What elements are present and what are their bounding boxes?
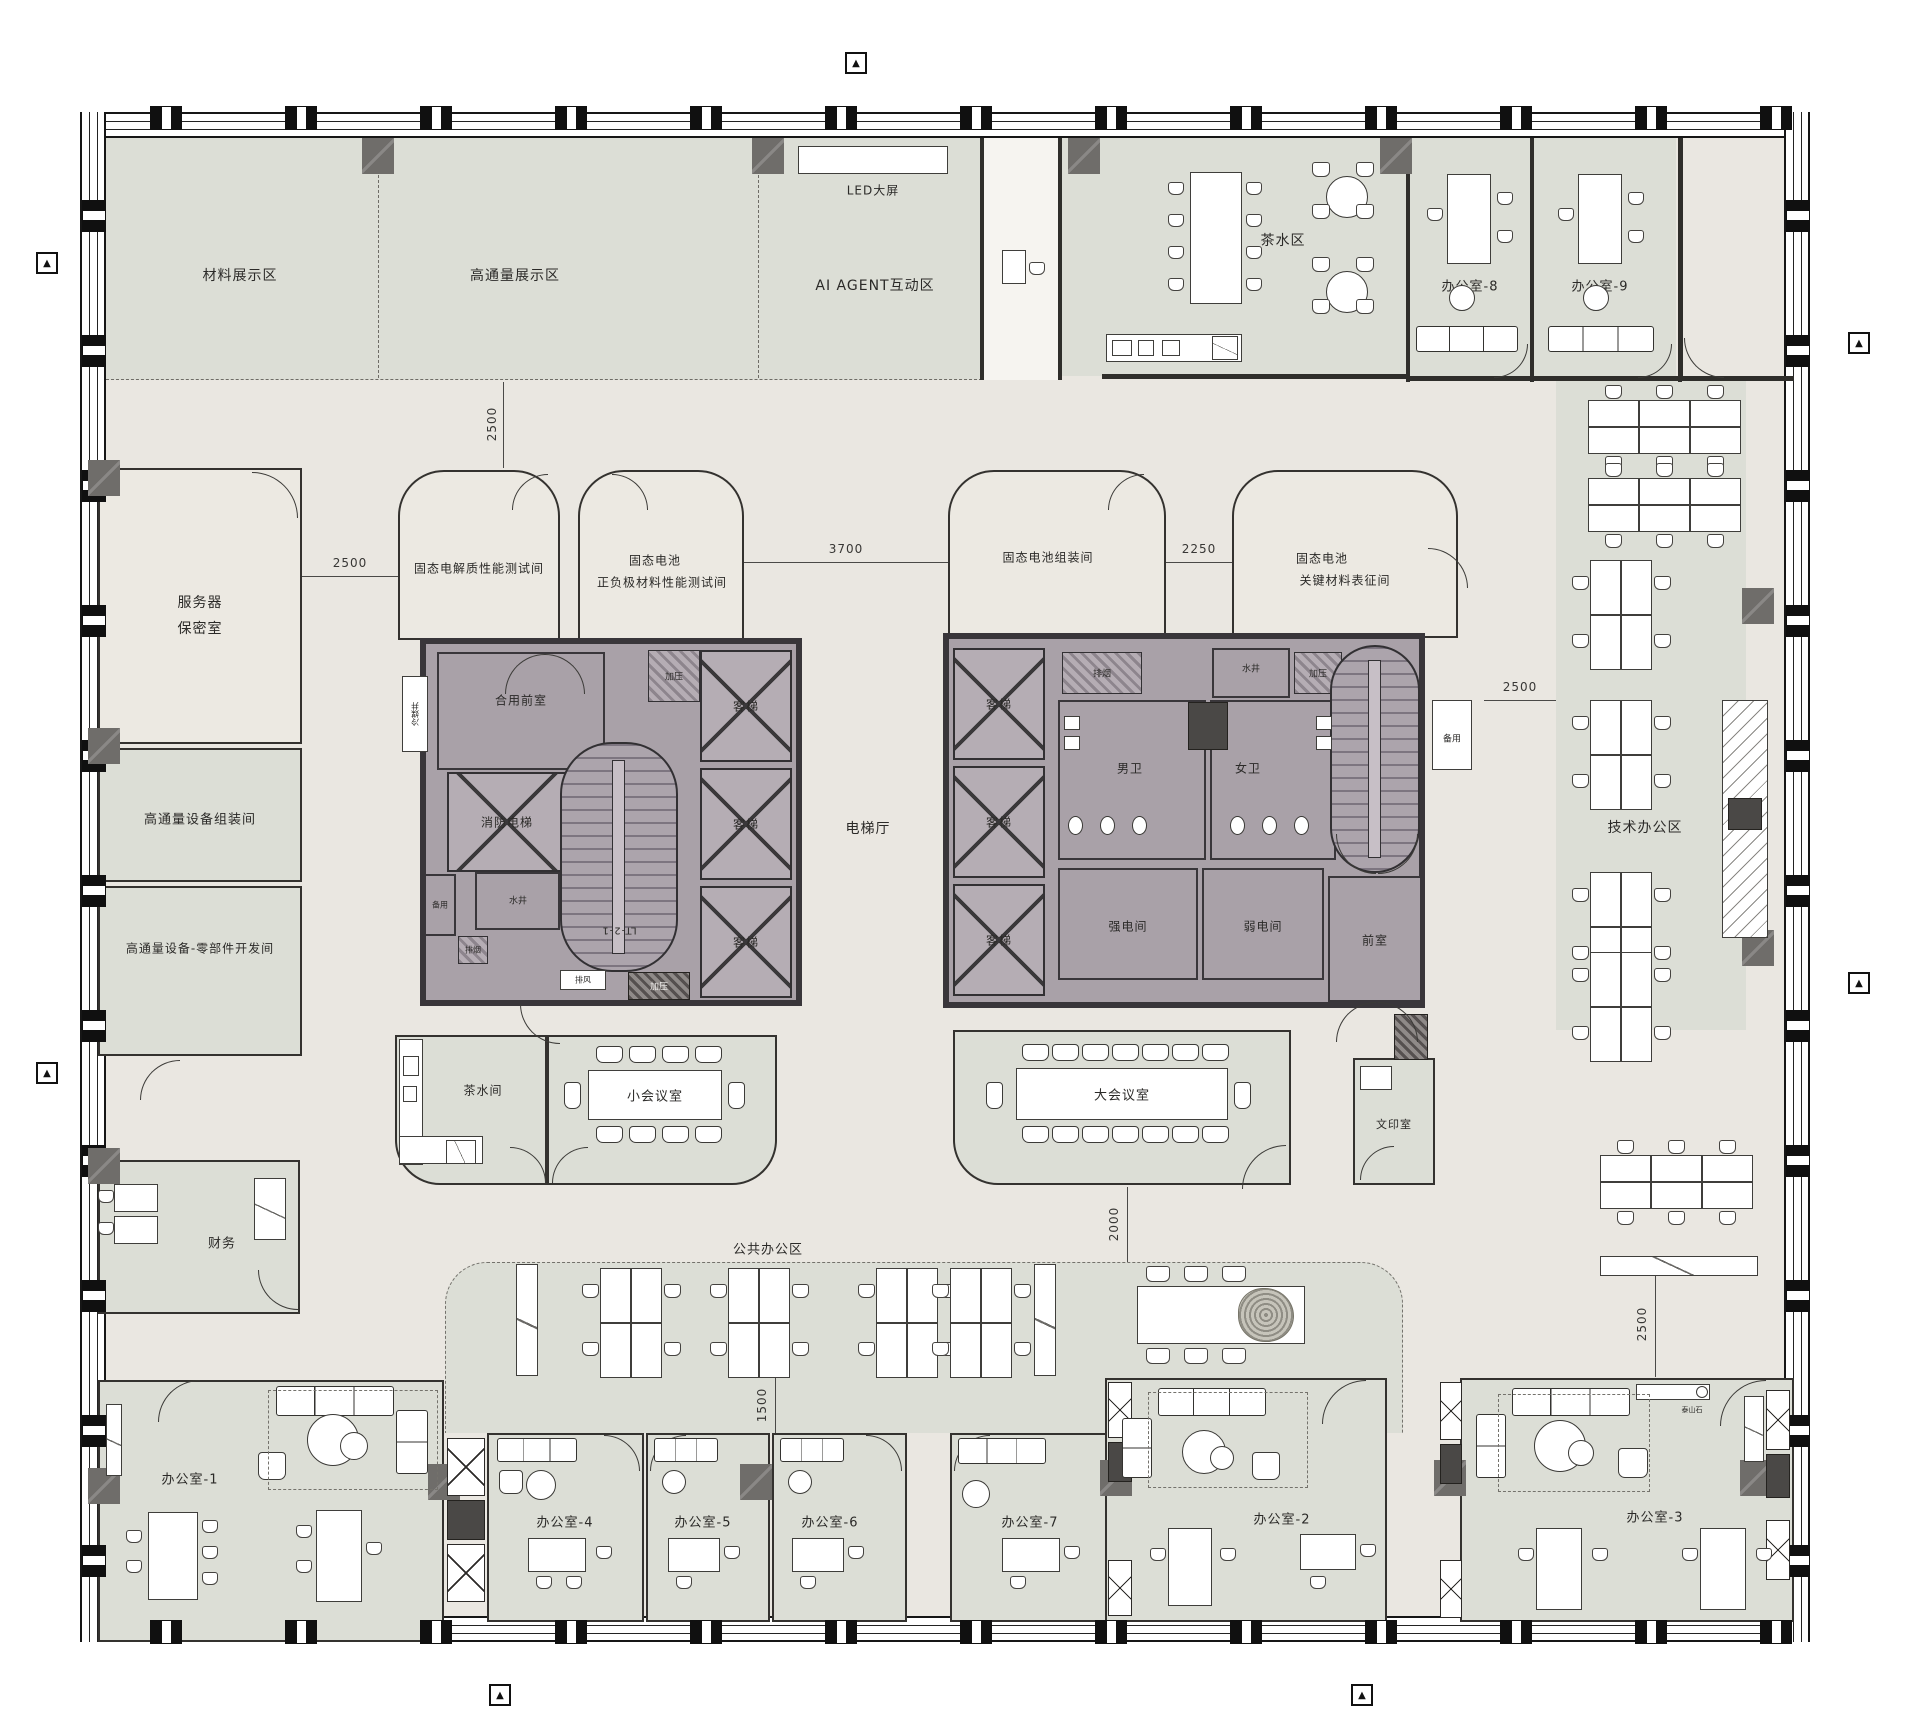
chair <box>1246 278 1262 291</box>
pouf <box>1583 285 1609 311</box>
chair <box>1605 534 1622 548</box>
window-mullion <box>1635 1620 1667 1644</box>
chair <box>1168 182 1184 195</box>
room-label-office-4: 办公室-4 <box>537 1512 594 1531</box>
chair <box>582 1342 599 1356</box>
desk <box>1621 615 1652 670</box>
section-marker: ▲ <box>36 252 58 274</box>
window-mullion <box>82 1280 106 1312</box>
chair <box>536 1576 552 1589</box>
chair <box>1668 1140 1685 1154</box>
chair <box>1654 576 1671 590</box>
chair <box>1427 208 1443 221</box>
desk <box>759 1323 790 1378</box>
chair <box>1312 299 1330 314</box>
chair <box>662 1046 689 1063</box>
spare-shaft-label: 备用 <box>1443 732 1461 745</box>
cabinet <box>516 1264 538 1376</box>
chair <box>1605 385 1622 399</box>
desk <box>1590 615 1621 670</box>
chair <box>1246 246 1262 259</box>
desk <box>528 1538 586 1572</box>
desk <box>1168 1528 1212 1606</box>
rug <box>1498 1394 1650 1492</box>
shaft-box <box>1766 1390 1790 1450</box>
zone-ai-agent <box>760 138 982 380</box>
passenger-elevator-label: 客梯 <box>733 934 759 951</box>
chair <box>1356 162 1374 177</box>
desk <box>1588 505 1639 532</box>
chair <box>1572 946 1589 960</box>
window-mullion <box>690 1620 722 1644</box>
chair <box>710 1342 727 1356</box>
lab-label-electrode-2: 正负极材料性能测试间 <box>597 574 727 591</box>
window-mullion <box>82 1010 106 1042</box>
chair <box>1082 1044 1109 1061</box>
column <box>752 138 784 174</box>
chair <box>858 1284 875 1298</box>
desk <box>1700 1528 1746 1610</box>
chair <box>800 1576 816 1589</box>
sink <box>1138 340 1154 356</box>
desk <box>876 1268 907 1323</box>
shaft-box <box>1440 1560 1462 1618</box>
front-room-label: 前室 <box>1362 932 1388 949</box>
meeting-table <box>148 1512 198 1600</box>
room-label-ht-parts-dev: 高通量设备-零部件开发间 <box>126 940 274 957</box>
cabinet <box>1744 1396 1764 1462</box>
rug <box>268 1390 438 1490</box>
chair <box>1572 968 1589 982</box>
pressurized-shaft-label: 加压 <box>650 980 668 993</box>
chair <box>1628 230 1644 243</box>
desk <box>1588 400 1639 427</box>
water-shaft-label: 水井 <box>509 894 527 907</box>
tea-pantry-label: 茶水间 <box>463 1082 502 1099</box>
desk <box>1621 872 1652 927</box>
window-mullion <box>150 1620 182 1644</box>
desk <box>114 1216 158 1244</box>
chair <box>629 1126 656 1143</box>
window-mullion <box>825 106 857 130</box>
window-mullion <box>82 1545 106 1577</box>
chair <box>1654 968 1671 982</box>
lab-label-characterization-2: 关键材料表征间 <box>1299 572 1390 589</box>
chair <box>1146 1348 1170 1364</box>
chair <box>1572 888 1589 902</box>
window-mullion <box>1786 335 1810 367</box>
chair <box>1572 634 1589 648</box>
chair <box>1310 1576 1326 1589</box>
smoke-exhaust-label: 排烟 <box>1093 667 1111 680</box>
sink <box>1162 340 1180 356</box>
window-mullion <box>690 106 722 130</box>
chair <box>1707 385 1724 399</box>
section-marker: ▲ <box>36 1062 58 1084</box>
window-mullion <box>82 335 106 367</box>
wc <box>1068 816 1083 835</box>
cabinet <box>1034 1264 1056 1376</box>
chair <box>1014 1342 1031 1356</box>
desk <box>1588 478 1639 505</box>
chair <box>1572 716 1589 730</box>
chair <box>1756 1548 1772 1561</box>
desk <box>1600 1155 1651 1182</box>
dim-line <box>503 382 504 468</box>
chair <box>1682 1548 1698 1561</box>
dim-2500-east: 2500 <box>1503 680 1538 694</box>
pouf <box>962 1480 990 1508</box>
chair <box>1220 1548 1236 1561</box>
lab-label-electrolyte: 固态电解质性能测试间 <box>414 560 544 577</box>
led-screen-shape <box>798 146 948 174</box>
desk <box>1590 560 1621 615</box>
dim-line <box>1484 700 1556 701</box>
chair <box>1628 192 1644 205</box>
desk <box>1639 505 1690 532</box>
desk <box>792 1538 844 1572</box>
wardrobe <box>106 1404 122 1476</box>
passenger-elevator-label: 客梯 <box>733 698 759 715</box>
chair <box>629 1046 656 1063</box>
round-table <box>526 1470 556 1500</box>
sofa <box>654 1438 718 1462</box>
dim-2500-topleft: 2500 <box>485 407 499 442</box>
room-ht-parts-dev <box>98 886 302 1056</box>
plant <box>1238 1288 1294 1342</box>
lab-label-characterization-1: 固态电池 <box>1296 550 1348 567</box>
stair-id-label: LT-2-1 <box>601 925 636 936</box>
window-mullion <box>1365 106 1397 130</box>
small-meeting-label: 小会议室 <box>627 1086 683 1105</box>
desk <box>1639 400 1690 427</box>
wall <box>1680 138 1683 378</box>
chair <box>1356 257 1374 272</box>
window-mullion <box>1786 605 1810 637</box>
room-label-office-5: 办公室-5 <box>675 1512 732 1531</box>
desk <box>1651 1155 1702 1182</box>
chair <box>1617 1211 1634 1225</box>
desk <box>1536 1528 1582 1610</box>
wc <box>1262 816 1277 835</box>
sink <box>1112 340 1132 356</box>
chair <box>695 1046 722 1063</box>
window-mullion <box>285 106 317 130</box>
chair <box>1146 1266 1170 1282</box>
chair <box>695 1126 722 1143</box>
chair <box>662 1126 689 1143</box>
shared-front-room-label: 合用前室 <box>495 692 547 709</box>
chair <box>1656 463 1673 477</box>
desk <box>950 1323 981 1378</box>
window-mullion <box>825 1620 857 1644</box>
weak-electric-label: 弱电间 <box>1243 918 1282 935</box>
window-mullion <box>82 1415 106 1447</box>
floor-plan: 材料展示区 高通量展示区 LED大屏 AI AGENT互动区 茶水区 办公室-8… <box>0 0 1920 1728</box>
column <box>740 1464 772 1500</box>
chair <box>1184 1348 1208 1364</box>
sink <box>1064 716 1080 730</box>
section-marker: ▲ <box>1848 332 1870 354</box>
zone-label-ai-agent: AI AGENT互动区 <box>815 275 934 295</box>
chair <box>1312 204 1330 219</box>
chair <box>1518 1548 1534 1561</box>
dim-1500: 1500 <box>755 1388 769 1423</box>
stair-spine <box>1368 660 1381 858</box>
chair <box>1654 634 1671 648</box>
exterior-wall-top <box>80 112 1810 138</box>
round-table <box>788 1470 812 1494</box>
chair <box>1202 1044 1229 1061</box>
room-label-office-2: 办公室-2 <box>1254 1509 1311 1528</box>
mens-wc <box>1058 700 1206 860</box>
chair <box>566 1576 582 1589</box>
cabinet <box>254 1178 286 1240</box>
chair <box>1360 1544 1376 1557</box>
column <box>88 1148 120 1184</box>
strong-electric-label: 强电间 <box>1108 918 1147 935</box>
service-shaft <box>1188 702 1228 750</box>
window-mullion <box>82 605 106 637</box>
sink <box>1316 736 1332 750</box>
dim-line <box>1655 1274 1656 1377</box>
chair <box>596 1546 612 1559</box>
desk <box>1447 174 1491 264</box>
desk <box>728 1268 759 1323</box>
chair <box>1356 299 1374 314</box>
window-mullion <box>1230 1620 1262 1644</box>
window-mullion <box>150 106 182 130</box>
desk <box>1600 1182 1651 1209</box>
chair <box>1202 1126 1229 1143</box>
lab-label-electrode-1: 固态电池 <box>629 552 681 569</box>
pressurized-shaft-label: 加压 <box>1309 667 1327 680</box>
chair <box>1082 1126 1109 1143</box>
desk <box>1690 427 1741 454</box>
chair <box>932 1284 949 1298</box>
window-mullion <box>1230 106 1262 130</box>
window-mullion <box>960 106 992 130</box>
chair <box>1719 1140 1736 1154</box>
wc <box>1230 816 1245 835</box>
chair <box>1605 463 1622 477</box>
water-shaft-label: 水井 <box>1242 662 1260 675</box>
smoke-exhaust-label: 排烟 <box>465 945 481 956</box>
chair <box>202 1520 218 1533</box>
column <box>1380 138 1412 174</box>
desk <box>950 1268 981 1323</box>
led-screen-label: LED大屏 <box>847 182 900 199</box>
chair <box>1572 576 1589 590</box>
zone-divider <box>758 140 759 378</box>
chair <box>1222 1266 1246 1282</box>
section-marker: ▲ <box>489 1684 511 1706</box>
printer <box>1360 1066 1392 1090</box>
chair <box>1654 774 1671 788</box>
window-mullion <box>1786 1280 1810 1312</box>
chair <box>1668 1211 1685 1225</box>
desk <box>1639 427 1690 454</box>
desk <box>1639 478 1690 505</box>
dim-line <box>775 1378 776 1433</box>
room-label-office-1: 办公室-1 <box>162 1469 219 1488</box>
chair <box>1142 1126 1169 1143</box>
shaft-dark <box>1766 1454 1790 1498</box>
shaft-dark <box>447 1500 485 1540</box>
zone-material-display <box>106 138 380 380</box>
zone-label-ht-display: 高通量展示区 <box>470 265 560 285</box>
chair <box>1234 1082 1251 1109</box>
window-mullion <box>1760 106 1792 130</box>
chair <box>664 1342 681 1356</box>
round-table <box>662 1470 686 1494</box>
chair <box>202 1546 218 1559</box>
desk <box>1690 400 1741 427</box>
zone-divider <box>378 140 379 378</box>
desk <box>981 1323 1012 1378</box>
window-mullion <box>960 1620 992 1644</box>
window-mullion <box>1095 1620 1127 1644</box>
mens-wc-label: 男卫 <box>1117 760 1143 777</box>
podium <box>1002 250 1026 284</box>
shaft-box <box>447 1544 485 1602</box>
dim-3700: 3700 <box>829 542 864 556</box>
chair <box>1010 1576 1026 1589</box>
chair <box>1707 534 1724 548</box>
chair <box>1112 1044 1139 1061</box>
chair <box>1654 716 1671 730</box>
dim-line <box>744 562 948 563</box>
column <box>88 728 120 764</box>
dim-2500-server: 2500 <box>333 556 368 570</box>
chair <box>1497 192 1513 205</box>
tech-office-label: 技术办公区 <box>1608 817 1683 837</box>
window-mullion <box>1786 1010 1810 1042</box>
room-label-ht-assembly: 高通量设备组装间 <box>144 809 256 828</box>
section-marker: ▲ <box>1848 972 1870 994</box>
chair <box>1052 1044 1079 1061</box>
desk <box>668 1538 720 1572</box>
chair <box>1029 262 1045 275</box>
room-label-server-1: 服务器 <box>178 592 223 612</box>
chair <box>858 1342 875 1356</box>
chair <box>724 1546 740 1559</box>
chair <box>564 1082 581 1109</box>
dim-2000: 2000 <box>1107 1207 1121 1242</box>
sink <box>403 1086 417 1102</box>
desk <box>1578 174 1622 264</box>
desk <box>631 1323 662 1378</box>
desk <box>1621 952 1652 1007</box>
chair <box>296 1560 312 1573</box>
window-mullion <box>420 106 452 130</box>
zone-label-tea-area: 茶水区 <box>1261 230 1306 250</box>
window-mullion <box>1786 875 1810 907</box>
room-label-office-3: 办公室-3 <box>1627 1507 1684 1526</box>
dim-2500-southeast: 2500 <box>1635 1307 1649 1342</box>
zone-high-throughput-display <box>380 138 760 380</box>
chair <box>1172 1126 1199 1143</box>
pressurized-shaft-label: 加压 <box>665 670 683 683</box>
sink <box>403 1056 419 1076</box>
fire-elevator-label: 消防电梯 <box>481 814 533 831</box>
desk <box>316 1510 362 1602</box>
public-office-label: 公共办公区 <box>733 1239 803 1258</box>
chair <box>1558 208 1574 221</box>
chair <box>1172 1044 1199 1061</box>
chair <box>848 1546 864 1559</box>
dim-line <box>1127 1187 1128 1262</box>
print-room-label: 文印室 <box>1376 1116 1412 1132</box>
taishan-stone-label: 泰山石 <box>1682 1405 1703 1415</box>
dim-line <box>302 576 398 577</box>
chair <box>296 1525 312 1538</box>
room-label-server-2: 保密室 <box>178 618 223 638</box>
chair <box>126 1560 142 1573</box>
desk <box>1590 872 1621 927</box>
chair <box>499 1470 523 1494</box>
chair <box>932 1342 949 1356</box>
passenger-elevator-label: 客梯 <box>986 814 1012 831</box>
desk <box>114 1184 158 1212</box>
wc <box>1100 816 1115 835</box>
desk <box>1590 952 1621 1007</box>
chair <box>1707 463 1724 477</box>
chair <box>1142 1044 1169 1061</box>
window-mullion <box>1760 1620 1792 1644</box>
desk <box>1588 427 1639 454</box>
shaft-box <box>1440 1382 1462 1440</box>
chair <box>1168 278 1184 291</box>
shaft-box <box>447 1438 485 1496</box>
desk <box>1651 1182 1702 1209</box>
window-mullion <box>1786 200 1810 232</box>
chair <box>1654 1026 1671 1040</box>
passenger-elevator-label: 客梯 <box>733 816 759 833</box>
desk <box>981 1268 1012 1323</box>
chair <box>986 1082 1003 1109</box>
lab-label-pack-assembly: 固态电池组装间 <box>1002 549 1093 566</box>
desk <box>1590 1007 1621 1062</box>
chair <box>1150 1548 1166 1561</box>
desk <box>1300 1534 1356 1570</box>
chair <box>98 1190 114 1203</box>
chair <box>1572 774 1589 788</box>
wall <box>1058 138 1062 380</box>
cabinet <box>1600 1256 1758 1276</box>
desk <box>1590 700 1621 755</box>
desk <box>1690 478 1741 505</box>
window-mullion <box>1095 106 1127 130</box>
column <box>1068 138 1100 174</box>
chair <box>676 1576 692 1589</box>
window-mullion <box>1635 106 1667 130</box>
chair <box>596 1126 623 1143</box>
counter-end <box>1212 336 1238 360</box>
chair <box>366 1542 382 1555</box>
window-mullion <box>285 1620 317 1644</box>
sink <box>1316 716 1332 730</box>
wc <box>1132 816 1147 835</box>
rug <box>1148 1392 1308 1488</box>
tea-long-table <box>1190 172 1242 304</box>
chair <box>710 1284 727 1298</box>
window-mullion <box>1786 740 1810 772</box>
room-label-finance: 财务 <box>208 1233 236 1252</box>
exhaust-shaft-label: 排风 <box>575 975 591 986</box>
chair <box>1022 1044 1049 1061</box>
window-mullion <box>82 200 106 232</box>
